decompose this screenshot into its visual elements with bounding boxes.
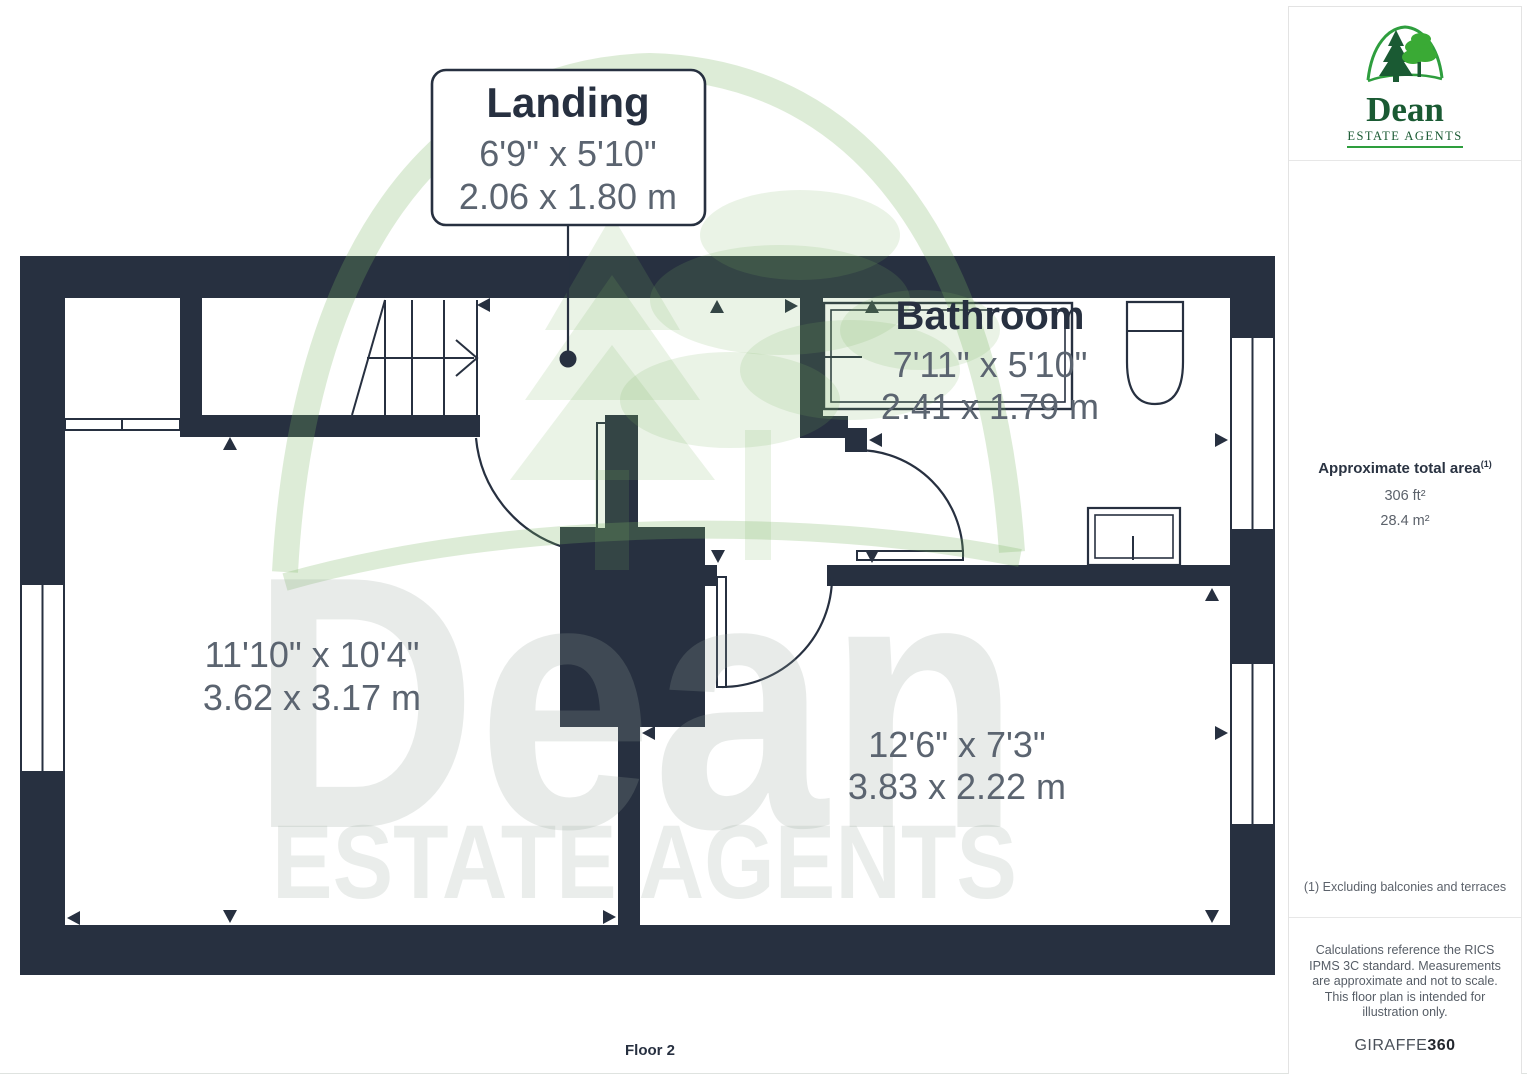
wall-bed2-top-left <box>705 565 717 586</box>
total-area-metric: 28.4 m² <box>1289 509 1521 534</box>
bedroom2-dim-imperial: 12'6" x 7'3" <box>868 724 1045 765</box>
wall-smallroom-right <box>180 298 202 435</box>
floor-label: Floor 2 <box>560 1042 740 1059</box>
door-leaf-bedroom2 <box>717 577 726 687</box>
dimension-arrow-left <box>477 298 490 312</box>
dimension-arrow-right <box>1215 726 1228 740</box>
dimension-arrow-right <box>1215 433 1228 447</box>
dimension-arrow-right <box>603 910 616 924</box>
wall-landing-south <box>180 415 480 437</box>
toilet <box>1127 302 1183 404</box>
bathroom-dim-imperial: 7'11" x 5'10" <box>893 344 1088 385</box>
door-arc-bathroom <box>857 450 963 556</box>
watermark-subword: ESTATE AGENTS <box>272 804 1017 921</box>
giraffe360-brand: GIRAFFE360 <box>1289 1037 1521 1055</box>
total-area-imperial: 306 ft² <box>1289 484 1521 509</box>
landing-callout: Landing 6'9" x 5'10" 2.06 x 1.80 m <box>432 70 705 368</box>
disclaimer-block: Calculations reference the RICS IPMS 3C … <box>1289 919 1521 1074</box>
agency-tagline: ESTATE AGENTS <box>1347 129 1462 148</box>
landing-title: Landing <box>486 79 649 126</box>
landing-dim-metric: 2.06 x 1.80 m <box>459 176 677 217</box>
dimension-arrow-down <box>223 910 237 923</box>
wall-bath-jog <box>800 416 848 438</box>
agency-tree-icon <box>1359 20 1451 90</box>
total-area-footnote-marker: (1) <box>1481 459 1492 469</box>
door-arc-bedroom2 <box>722 577 832 687</box>
bedroom1-dim-imperial: 11'10" x 10'4" <box>205 634 420 675</box>
bathroom-title: Bathroom <box>896 294 1085 338</box>
door-leaf-bedroom1 <box>597 423 606 529</box>
dimension-arrow-down <box>1205 910 1219 923</box>
dimension-arrow-up <box>1205 588 1219 601</box>
agency-logo: Dean ESTATE AGENTS <box>1289 7 1521 161</box>
wall-bath-stub <box>845 428 867 452</box>
wall-central-block <box>560 527 705 727</box>
wall-top <box>20 256 1275 298</box>
wall-door-stub <box>605 415 638 528</box>
dimension-arrow-left <box>642 726 655 740</box>
landing-leader-dot <box>560 351 577 368</box>
landing-dim-imperial: 6'9" x 5'10" <box>479 133 656 174</box>
dimension-arrow-left <box>869 433 882 447</box>
bedroom2-dim-metric: 3.83 x 2.22 m <box>848 766 1066 807</box>
staircase <box>352 300 477 415</box>
wall-bed2-top-right <box>827 565 1230 586</box>
dimension-arrow-up <box>710 300 724 313</box>
door-arc-bedroom1 <box>476 438 563 547</box>
total-area-title: Approximate total area(1) <box>1289 459 1521 477</box>
dimension-arrow-up <box>223 437 237 450</box>
dimension-arrow-left <box>67 911 80 925</box>
wall-bath-left <box>800 298 823 418</box>
area-footnote: (1) Excluding balconies and terraces <box>1289 856 1521 918</box>
sidebar: Dean ESTATE AGENTS Approximate total are… <box>1288 6 1522 1074</box>
bathroom-fixtures <box>822 302 1183 565</box>
bathroom-dim-metric: 2.41 x 1.79 m <box>881 386 1099 427</box>
wall-room-divider <box>618 727 640 925</box>
dimension-arrow-right <box>785 299 798 313</box>
bedroom1-dim-metric: 3.62 x 3.17 m <box>203 677 421 718</box>
floor-plan-canvas: Dean ESTATE AGENTS Landing 6'9" x 5'10" … <box>0 0 1287 1080</box>
dimension-arrow-down <box>711 550 725 563</box>
total-area-block: Approximate total area(1) 306 ft² 28.4 m… <box>1289 459 1521 534</box>
wall-bottom <box>20 925 1275 975</box>
agency-name: Dean <box>1366 92 1444 127</box>
disclaimer-text: Calculations reference the RICS IPMS 3C … <box>1307 943 1503 1021</box>
